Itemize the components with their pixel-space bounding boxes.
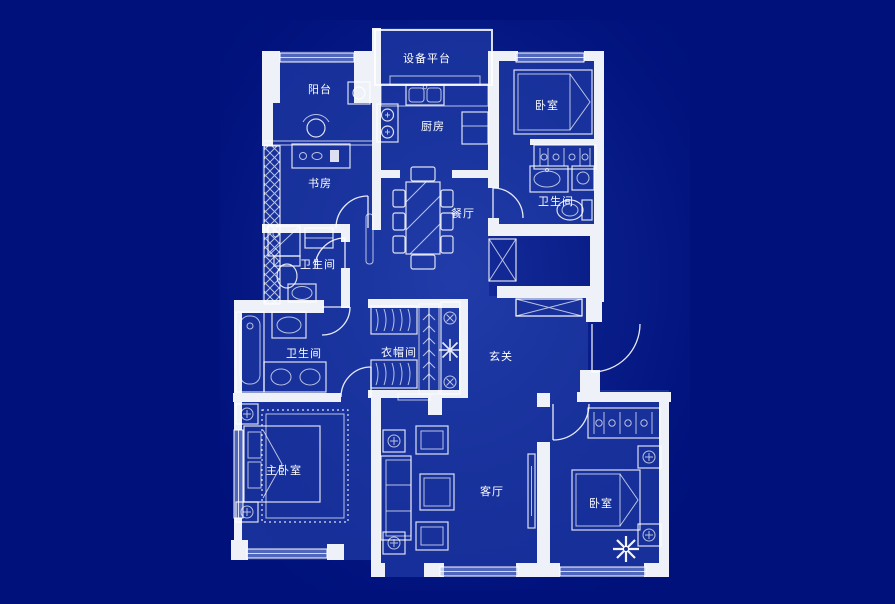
wall-segment: [577, 392, 671, 402]
wall-segment: [262, 98, 273, 146]
wall-segment: [544, 563, 560, 577]
room-label-bedroom-bottom-right: 卧室: [589, 496, 613, 510]
hatched-hall-wall: [516, 299, 582, 316]
room-label-bathroom-suite: 卫生间: [538, 194, 574, 208]
room-label-kitchen: 厨房: [421, 120, 445, 133]
room-label-dining: 餐厅: [451, 206, 475, 220]
window: [234, 430, 243, 518]
wall-segment: [233, 393, 341, 402]
wall-segment: [452, 170, 488, 178]
room-label-bathroom-lower: 卫生间: [286, 346, 322, 360]
wall-segment: [327, 544, 344, 560]
wall-segment: [586, 298, 602, 322]
wall-segment: [537, 442, 550, 577]
blueprint-page: 设备平台 阳台 卧室 厨房 书房 卫生间 餐厅 卫生间 卫生间 衣帽间 玄关 主…: [0, 0, 895, 604]
room-label-cloakroom: 衣帽间: [381, 345, 417, 359]
room-label-equipment-platform: 设备平台: [403, 51, 451, 65]
window: [280, 53, 354, 62]
wall-segment: [488, 53, 499, 188]
room-label-study: 书房: [308, 177, 332, 190]
window: [516, 53, 584, 62]
room-label-balcony: 阳台: [308, 82, 332, 96]
window: [247, 549, 327, 558]
wall-segment: [488, 224, 604, 236]
wall-segment: [341, 268, 350, 308]
window: [560, 567, 646, 576]
wall-segment: [497, 286, 604, 298]
room-label-bathroom-upper: 卫生间: [300, 257, 336, 271]
wall-segment: [530, 139, 596, 145]
wall-segment: [262, 51, 280, 103]
window: [440, 567, 518, 576]
wall-segment: [231, 540, 248, 560]
floor-plan-svg: 设备平台 阳台 卧室 厨房 书房 卫生间 餐厅 卫生间 卫生间 衣帽间 玄关 主…: [0, 0, 895, 604]
room-label-entrance-hall: 玄关: [489, 349, 513, 363]
wall-segment: [516, 563, 538, 577]
wall-segment: [371, 563, 385, 577]
wall-segment: [372, 170, 400, 178]
wall-segment: [644, 563, 669, 577]
wall-segment: [371, 393, 381, 577]
room-label-bedroom-top-right: 卧室: [535, 98, 559, 112]
room-label-living-room: 客厅: [480, 484, 504, 498]
wall-segment: [537, 393, 550, 407]
room-label-master-bedroom: 主卧室: [266, 463, 302, 477]
